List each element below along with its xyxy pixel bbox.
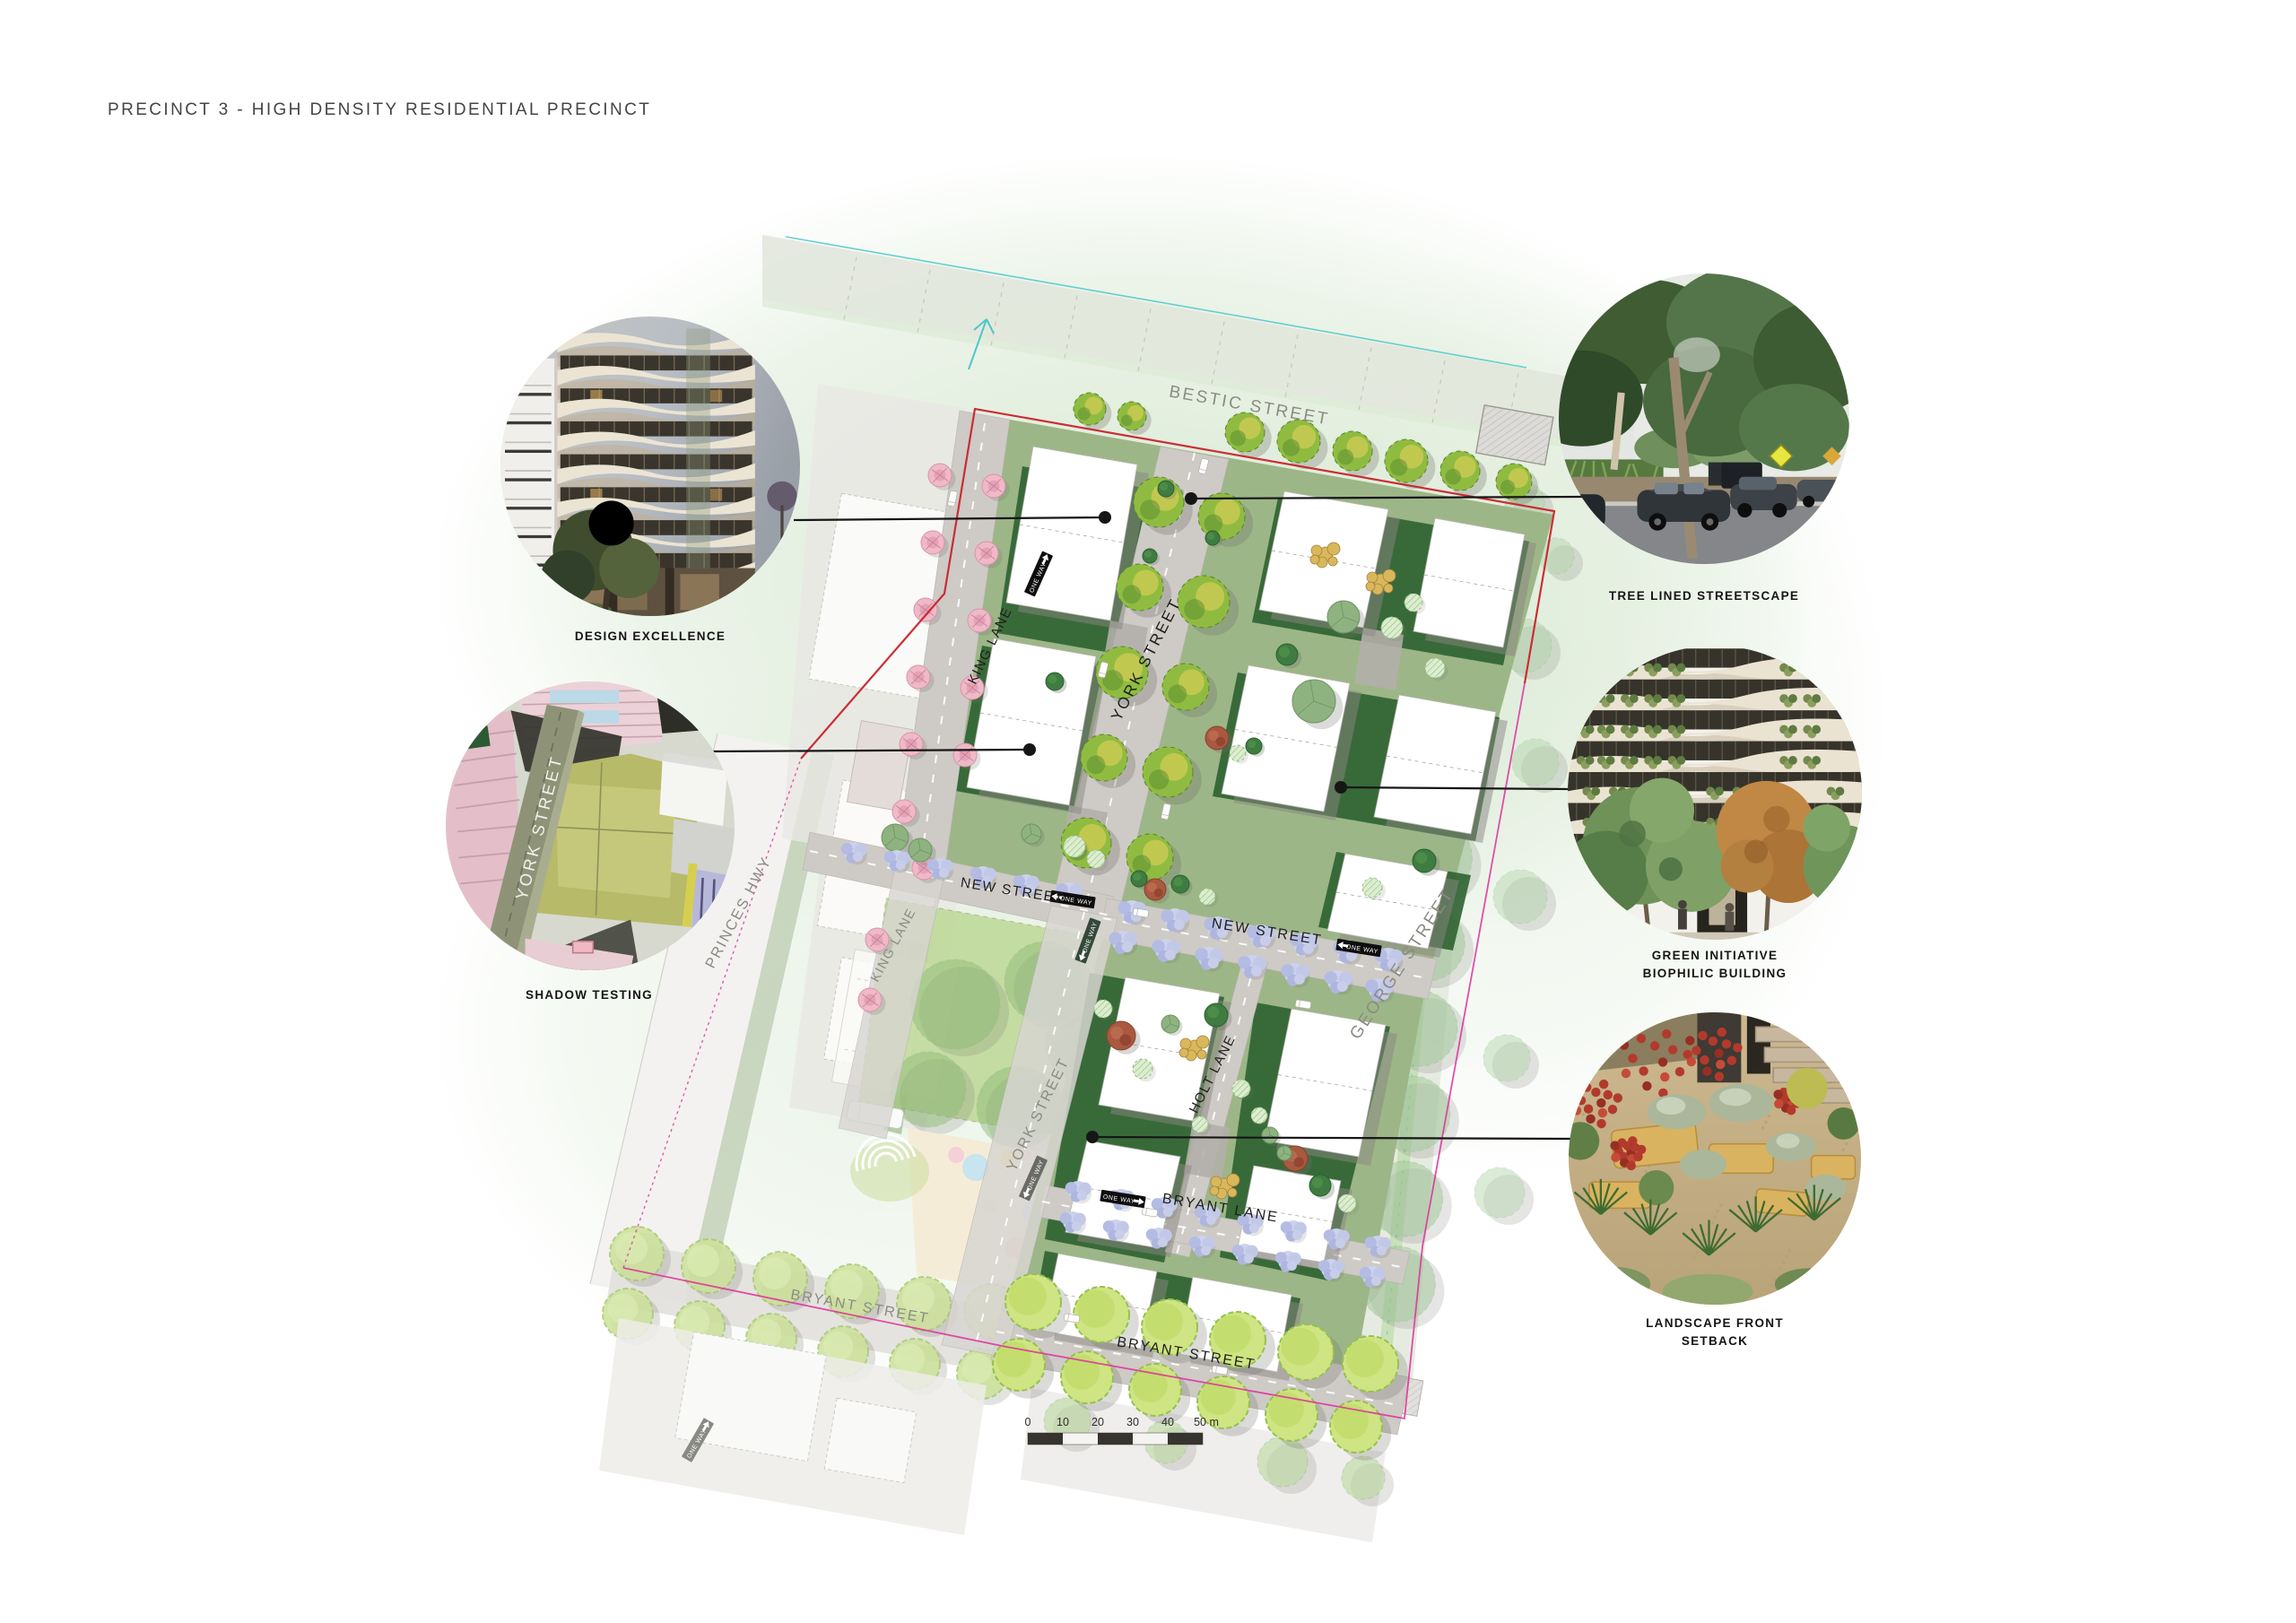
photo-green-initiative: [1568, 646, 1862, 940]
caption-text: TREE LINED STREETSCAPE: [1609, 589, 1799, 603]
tree-lined-illustration: [1559, 273, 1849, 564]
caption-green-initiative: GREEN INITIATIVE BIOPHILIC BUILDING: [1578, 947, 1852, 983]
photo-shadow-testing: YORK STREET: [446, 681, 735, 970]
design-excellence-illustration: [500, 317, 800, 616]
masterplan-map: ONE WAYONE WAYONE WAYONE WAYONE WAYONE W…: [0, 0, 2296, 1623]
photo-landscape-setback: [1569, 1012, 1861, 1305]
caption-tree-lined: TREE LINED STREETSCAPE: [1567, 587, 1841, 605]
green-initiative-illustration: [1568, 646, 1862, 940]
caption-text-line1: LANDSCAPE FRONT: [1578, 1315, 1852, 1332]
callout-dot-green-initiative: [1335, 781, 1347, 794]
landscape-setback-illustration: [1569, 1012, 1861, 1305]
callout-dot-landscape-setback: [1086, 1131, 1099, 1143]
scale-tick: 50 m: [1194, 1416, 1219, 1428]
caption-design-excellence: DESIGN EXCELLENCE: [516, 628, 785, 646]
caption-text: DESIGN EXCELLENCE: [575, 629, 726, 643]
scale-tick: 10: [1057, 1416, 1069, 1428]
scale-tick: 0: [1025, 1416, 1031, 1428]
callout-dot-design-excellence: [1099, 511, 1111, 524]
page: PRECINCT 3 - HIGH DENSITY RESIDENTIAL PR…: [0, 0, 2296, 1623]
scale-tick: 30: [1126, 1416, 1139, 1428]
caption-text-line2: BIOPHILIC BUILDING: [1578, 965, 1852, 983]
caption-text-line1: GREEN INITIATIVE: [1578, 947, 1852, 965]
scale-bar-segment: [1168, 1433, 1203, 1445]
scale-tick: 20: [1091, 1416, 1104, 1428]
caption-landscape-setback: LANDSCAPE FRONT SETBACK: [1578, 1315, 1852, 1350]
photo-tree-lined-streetscape: [1559, 273, 1849, 564]
callout-dot-shadow-testing: [1023, 743, 1036, 756]
scale-tick: 40: [1161, 1416, 1174, 1428]
photo-design-excellence: [500, 317, 800, 616]
scale-bar-segment: [1028, 1433, 1063, 1445]
scale-bar-segment: [1098, 1433, 1133, 1445]
caption-shadow-testing: SHADOW TESTING: [455, 986, 724, 1004]
callout-dot-tree-lined: [1185, 492, 1197, 505]
shadow-testing-illustration: YORK STREET: [446, 681, 735, 970]
caption-text-line2: SETBACK: [1578, 1332, 1852, 1350]
caption-text: SHADOW TESTING: [526, 988, 653, 1002]
